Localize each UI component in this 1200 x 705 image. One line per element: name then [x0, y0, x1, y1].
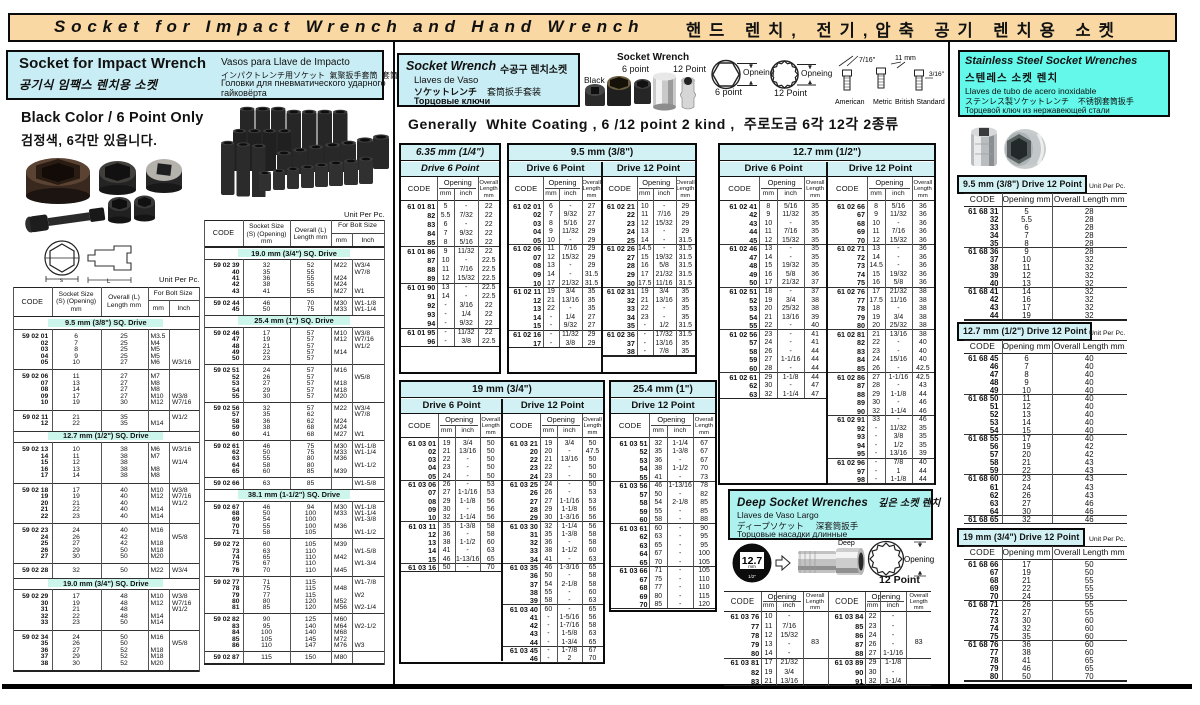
svg-text:3/16″: 3/16″ — [929, 71, 945, 78]
svg-text:11 mm: 11 mm — [895, 55, 916, 62]
svg-text:Opening: Opening — [904, 555, 934, 564]
svg-text:Deep: Deep — [838, 540, 855, 547]
svg-text:1/2″: 1/2″ — [748, 574, 756, 579]
svg-text:Metric: Metric — [873, 99, 893, 106]
svg-text:mm: mm — [748, 564, 756, 569]
svg-text:s: s — [60, 278, 63, 284]
svg-text:7/16″: 7/16″ — [859, 57, 876, 64]
svg-text:American: American — [835, 99, 865, 106]
svg-text:British Standard: British Standard — [895, 99, 945, 106]
